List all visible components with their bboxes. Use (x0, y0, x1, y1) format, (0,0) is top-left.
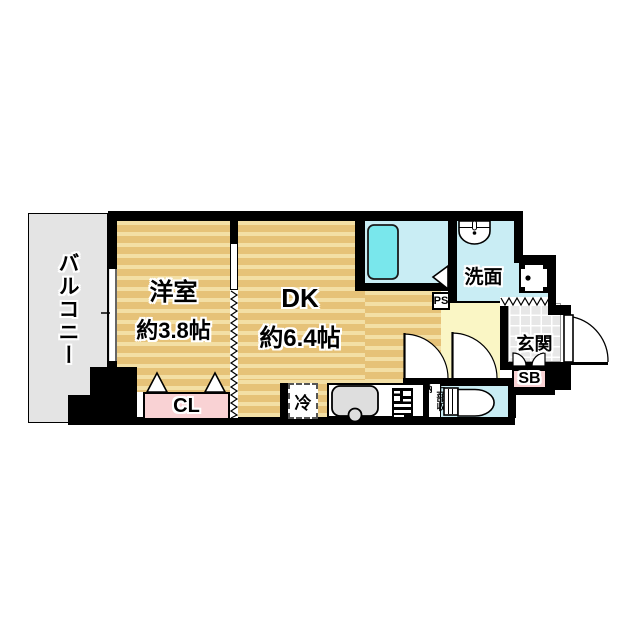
dk-size: 約6.4帖 (238, 318, 362, 353)
dk-label-block: DK 約6.4帖 (238, 283, 362, 353)
floorplan-canvas: CL 冷 上部収納 PS SB (0, 0, 640, 640)
upper-storage-box: 上部収納 (428, 383, 441, 418)
wall-hall-entrance (500, 303, 508, 363)
closet-label: CL (173, 395, 200, 418)
wall-kitchen-west (280, 383, 288, 418)
western-room-size: 約3.8帖 (117, 313, 230, 345)
pipe-space-label: PS (434, 295, 449, 307)
dk-label: DK (238, 283, 362, 314)
entrance-label: 玄関 (508, 330, 561, 356)
sliding-door-panel (230, 243, 238, 290)
wall-top (108, 211, 523, 221)
shoe-box-label: SB (518, 370, 540, 388)
toilet-floor (441, 384, 508, 418)
dk-floor-east (365, 291, 441, 380)
wall-step-1 (90, 367, 137, 423)
refrigerator-label: 冷 (295, 389, 312, 414)
pipe-space-box: PS (432, 292, 450, 310)
wall-sb-east (547, 362, 571, 390)
wall-dk-bathroom (355, 211, 365, 291)
wall-entrance-ne (548, 305, 571, 315)
hallway-floor (441, 300, 500, 380)
wall-toilet-east (508, 384, 516, 418)
kitchen-counter (327, 383, 425, 418)
front-door-icon (564, 315, 608, 362)
refrigerator-box: 冷 (288, 383, 318, 419)
window-west (108, 269, 117, 361)
washroom-label: 洗面 (455, 262, 512, 289)
balcony-label: バルコニー (52, 252, 82, 402)
accordion-partition-icon (230, 290, 238, 418)
bathroom-floor (365, 221, 448, 283)
wall-partition-stub (230, 211, 238, 243)
wall-line-door-stop (571, 362, 608, 365)
upper-storage-label: 上部収納 (422, 384, 448, 417)
wall-bathroom-washroom (448, 211, 457, 303)
shoe-box: SB (512, 369, 547, 389)
wall-laundry-east (548, 255, 556, 305)
laundry-alcove-floor (514, 263, 548, 305)
wall-bathroom-south (355, 283, 457, 291)
western-room-label: 洋室 (117, 272, 230, 307)
closet-box: CL (143, 392, 230, 420)
western-room-label-block: 洋室 約3.8帖 (117, 272, 230, 345)
wall-line-washroom-hall (452, 301, 500, 303)
